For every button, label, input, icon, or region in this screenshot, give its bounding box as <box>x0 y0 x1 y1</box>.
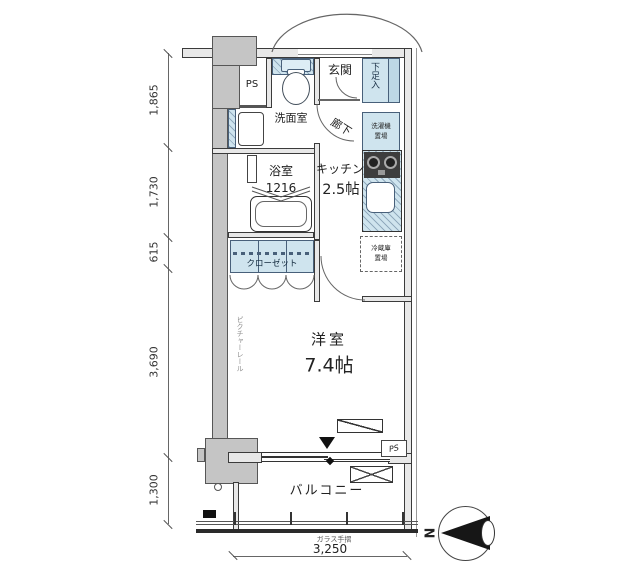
fridge-label-line2: 置場 <box>375 255 388 262</box>
dim-label-3250: 3,250 <box>310 543 350 555</box>
railing-line <box>196 521 418 522</box>
wall-bottom-left <box>228 452 262 463</box>
wall-bath-kitchen <box>314 143 320 240</box>
washer-label-line2: 置場 <box>375 133 388 140</box>
kitchen-label: キッチン <box>316 163 364 175</box>
wall-right-outer-line <box>416 48 417 537</box>
pillar-top-left-stem <box>212 65 240 109</box>
stove-burner <box>367 156 380 169</box>
wall-bath-bottom <box>228 232 314 238</box>
bathroom-label: 浴室 <box>269 165 293 177</box>
washer-label-line1: 洗濯機 <box>371 123 391 130</box>
genkan-door-arc <box>336 77 357 98</box>
stove-knob <box>378 170 385 175</box>
kitchen-sink <box>366 182 395 213</box>
balcony-hatch-box <box>203 510 216 518</box>
closet-folding-door-arc <box>230 275 258 289</box>
dim-label-1300: 1,300 <box>149 474 160 506</box>
genkan-step-line <box>318 99 360 101</box>
railing-post <box>234 512 236 525</box>
dim-line-left <box>168 53 169 524</box>
wall-ps-bottom <box>240 105 266 108</box>
dim-label-1730: 1,730 <box>149 176 160 208</box>
dim-label-3690: 3,690 <box>149 346 160 378</box>
ps-top-label: PS <box>246 80 258 90</box>
vanity-counter-strip <box>228 109 236 148</box>
western-room-label: 洋室 <box>311 333 347 348</box>
shoe-box-label: 下足入 <box>369 62 378 89</box>
genkan-label: 玄関 <box>328 64 352 76</box>
balcony-window-pane <box>262 456 328 458</box>
wall-genkan-washroom <box>314 58 320 105</box>
entrance-opening <box>298 49 372 57</box>
corridor-label: 廊下 <box>329 117 353 138</box>
balcony-edge-line <box>196 529 418 533</box>
fridge-label-line1: 冷蔵庫 <box>371 245 391 252</box>
wall-closet-kitchen <box>314 240 320 302</box>
ps-bottom-label: PS <box>388 444 399 454</box>
balcony-label: バルコニー <box>290 485 365 498</box>
kitchen-size-label: 2.5帖 <box>322 183 360 198</box>
window-direction-marker <box>319 437 335 449</box>
dim-line-bottom <box>233 556 407 557</box>
wall-left <box>212 108 228 440</box>
railing-post <box>346 512 348 525</box>
railing-post <box>402 512 404 525</box>
wall-washroom-bath <box>212 148 320 154</box>
compass-north-label: N <box>425 528 438 539</box>
closet-folding-door-arc <box>258 275 286 289</box>
bathtub-inner <box>255 201 307 227</box>
toilet-bowl <box>282 72 310 105</box>
closet-folding-door-arc <box>286 275 314 289</box>
railing-post <box>290 512 292 525</box>
stove-burner <box>384 156 397 169</box>
picture-rail-label: ピクチャーレール <box>236 316 243 372</box>
compass-tail <box>481 520 495 546</box>
floor-plan: 1,865 1,730 615 3,690 1,300 3,250 下足入 洗濯… <box>0 0 640 569</box>
bath-counter <box>247 155 257 183</box>
dim-label-615: 615 <box>149 242 160 263</box>
railing-line <box>196 524 418 525</box>
entrance-threshold <box>298 54 372 55</box>
dim-label-1865: 1,865 <box>149 84 160 116</box>
room-counter <box>337 419 383 433</box>
vanity-basin <box>238 112 264 146</box>
glass-rail-label: ガラス手摺 <box>317 537 352 544</box>
washroom-label: 洗面室 <box>275 113 308 124</box>
kitchen-door-arc <box>321 256 365 300</box>
wall-kitchen-room <box>362 296 412 302</box>
bathroom-size-label: 1216 <box>266 182 297 194</box>
closet-label: クローゼット <box>246 260 297 269</box>
shoe-box <box>362 58 400 103</box>
balcony-drain <box>214 483 222 491</box>
western-room-size-label: 7.4帖 <box>304 357 353 376</box>
pillar-bottom-left-tab <box>197 448 205 462</box>
entrance-door-arc <box>272 14 422 52</box>
ac-unit-space <box>350 466 393 483</box>
pillar-top-left <box>212 36 257 66</box>
